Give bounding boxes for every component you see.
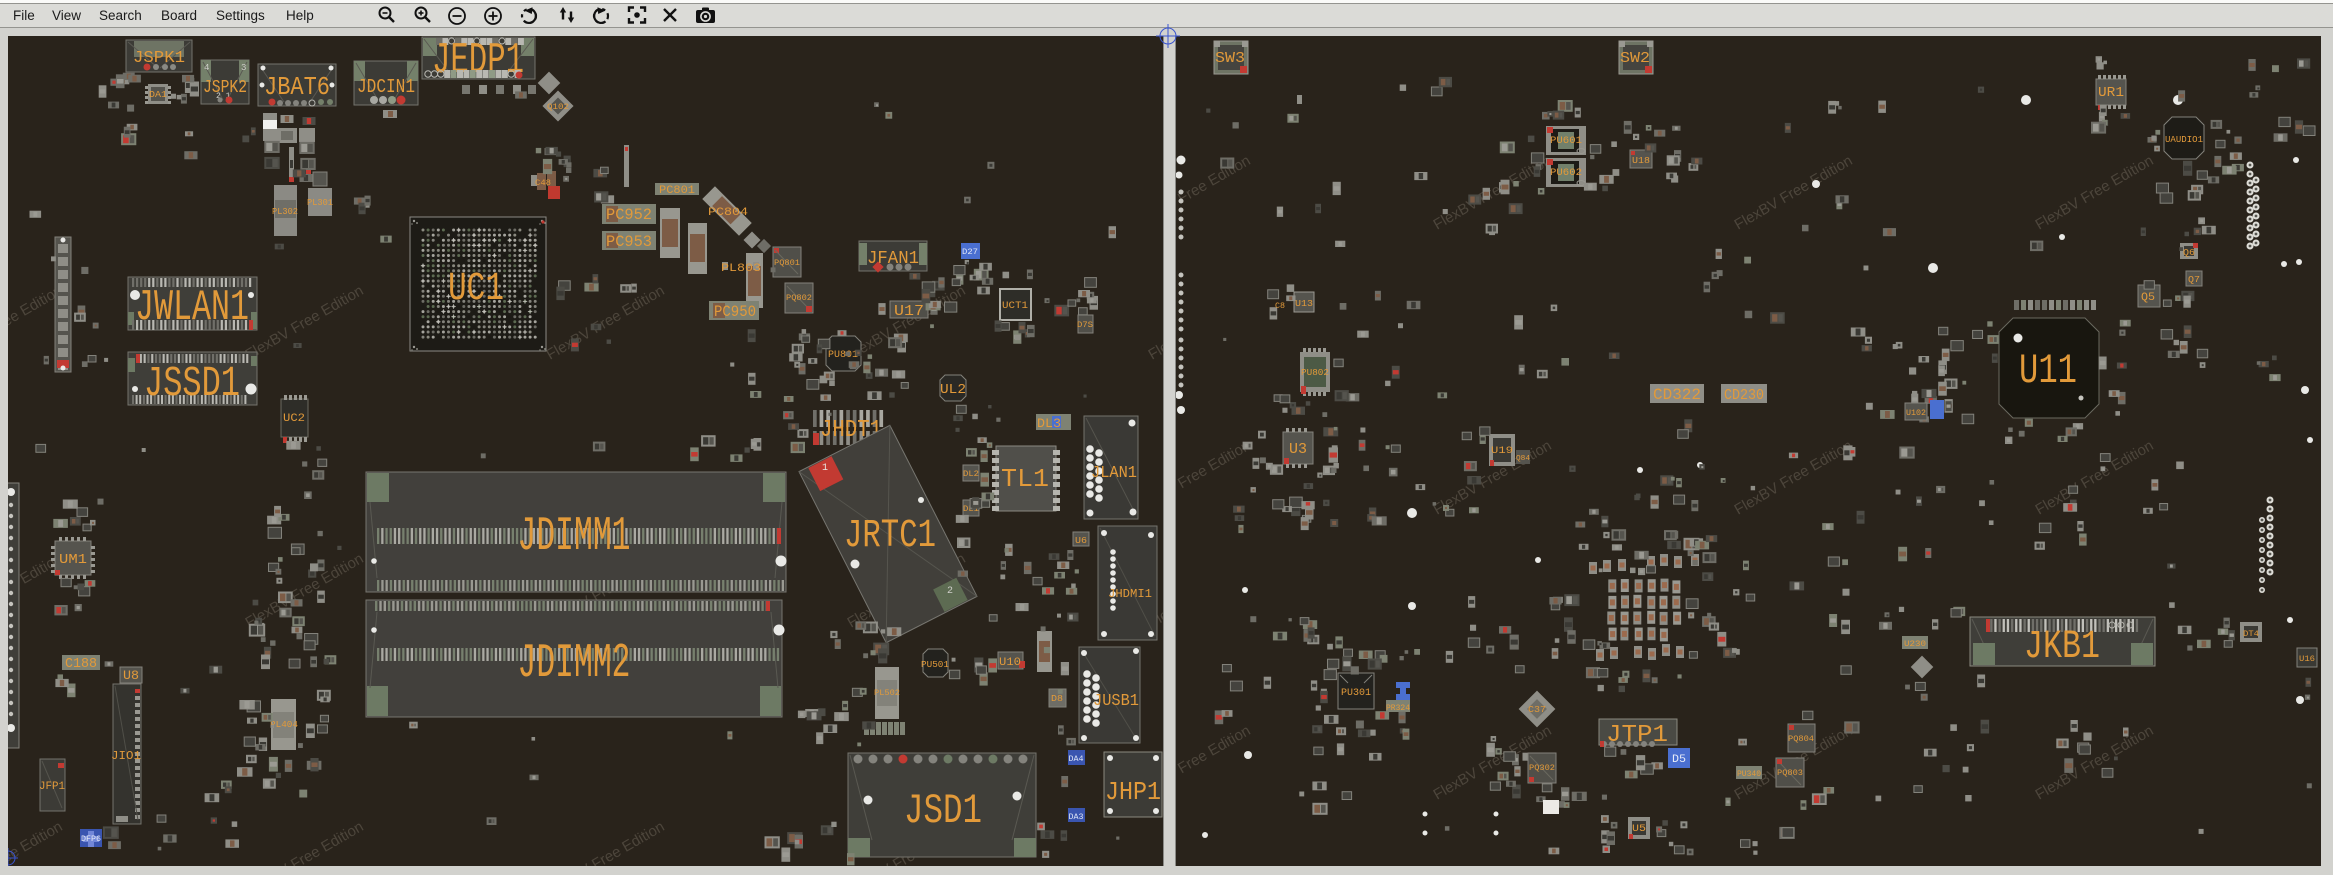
svg-text:JFP1: JFP1: [39, 781, 65, 793]
svg-text:PU801: PU801: [828, 350, 858, 361]
svg-text:PL301: PL301: [307, 198, 333, 208]
svg-text:JBAT6: JBAT6: [264, 72, 330, 102]
svg-text:U10: U10: [999, 657, 1021, 669]
svg-text:PC952: PC952: [606, 206, 652, 224]
svg-text:JUSB1: JUSB1: [1093, 692, 1139, 711]
svg-text:3: 3: [241, 63, 246, 73]
svg-text:CD322: CD322: [1653, 386, 1701, 404]
svg-text:C48: C48: [535, 179, 551, 188]
svg-text:PL803: PL803: [721, 263, 761, 275]
svg-text:D8: D8: [1051, 694, 1063, 704]
svg-text:PC801: PC801: [659, 185, 695, 197]
svg-text:U11: U11: [2019, 347, 2077, 395]
svg-text:PU802: PU802: [1301, 368, 1329, 378]
svg-text:JSPK1: JSPK1: [133, 49, 185, 68]
svg-text:DT4: DT4: [2243, 630, 2259, 639]
svg-text:JDCIN1: JDCIN1: [357, 76, 415, 98]
svg-text:PQ302: PQ302: [1529, 764, 1555, 773]
svg-text:TL1: TL1: [1001, 464, 1049, 494]
svg-text:DL2: DL2: [963, 470, 979, 479]
svg-text:D5: D5: [1672, 754, 1686, 766]
svg-text:JSD1: JSD1: [904, 787, 982, 835]
svg-text:PR324: PR324: [1386, 704, 1410, 713]
svg-text:DA3: DA3: [1069, 813, 1084, 822]
svg-text:Q5: Q5: [2141, 292, 2155, 304]
svg-text:D27: D27: [962, 248, 978, 257]
svg-text:DL3: DL3: [1037, 416, 1061, 431]
svg-text:JDIMM2: JDIMM2: [518, 637, 631, 691]
svg-text:PQ804: PQ804: [1788, 735, 1814, 744]
svg-text:PL302: PL302: [272, 207, 298, 217]
svg-text:U18: U18: [1632, 156, 1650, 166]
svg-text:C8: C8: [1275, 302, 1285, 311]
svg-text:JRTC1: JRTC1: [844, 514, 936, 559]
svg-text:JDIMM1: JDIMM1: [518, 510, 631, 564]
svg-text:1: 1: [822, 463, 828, 474]
svg-text:PU301: PU301: [1341, 688, 1371, 699]
svg-text:UCT1: UCT1: [1002, 301, 1028, 312]
svg-text:JEDP1: JEDP1: [432, 36, 524, 86]
svg-text:U16: U16: [2299, 655, 2315, 664]
svg-text:DA4: DA4: [1069, 755, 1084, 764]
svg-text:JIO1: JIO1: [111, 749, 141, 763]
svg-text:PC804: PC804: [708, 207, 748, 219]
svg-text:DFP6: DFP6: [81, 835, 101, 844]
svg-text:D7S: D7S: [1077, 321, 1093, 330]
svg-text:U19: U19: [1491, 446, 1513, 457]
svg-text:JSSD1: JSSD1: [144, 359, 240, 408]
svg-text:JHDMI1: JHDMI1: [1108, 587, 1152, 601]
svg-text:PU602: PU602: [1550, 168, 1582, 179]
svg-text:U17: U17: [894, 303, 924, 320]
svg-text:U3: U3: [1289, 441, 1307, 458]
svg-text:U8: U8: [123, 668, 139, 683]
svg-text:DA1: DA1: [149, 90, 167, 100]
svg-text:U5: U5: [1632, 824, 1646, 835]
svg-text:SW2: SW2: [1620, 50, 1650, 67]
svg-text:PQ802: PQ802: [786, 294, 812, 303]
svg-text:PL502: PL502: [874, 689, 900, 698]
svg-text:SW3: SW3: [1215, 50, 1245, 67]
svg-text:PQ801: PQ801: [774, 259, 800, 268]
svg-text:UC2: UC2: [283, 413, 305, 425]
svg-text:UR1: UR1: [2098, 85, 2124, 101]
svg-text:C37: C37: [1528, 705, 1546, 715]
svg-text:Q7: Q7: [2188, 275, 2200, 285]
svg-text:Q6: Q6: [2183, 248, 2195, 258]
svg-text:JLAN1: JLAN1: [1091, 464, 1137, 483]
svg-text:PC953: PC953: [606, 233, 652, 251]
svg-text:JWLAN1: JWLAN1: [135, 283, 249, 333]
svg-text:PL404: PL404: [270, 720, 298, 730]
svg-text:UAUDIO1: UAUDIO1: [2165, 135, 2203, 145]
svg-text:U13: U13: [1295, 299, 1313, 309]
svg-text:PQ803: PQ803: [1777, 769, 1803, 778]
svg-text:4: 4: [204, 63, 209, 73]
svg-text:UL2: UL2: [940, 382, 966, 398]
svg-text:CD230: CD230: [1724, 387, 1764, 404]
svg-text:JHP1: JHP1: [1105, 777, 1161, 807]
svg-text:Q102: Q102: [547, 103, 569, 112]
svg-text:PU340: PU340: [1737, 770, 1761, 779]
svg-text:C188: C188: [65, 656, 97, 672]
svg-text:UM1: UM1: [59, 552, 87, 568]
svg-text:UC1: UC1: [448, 267, 504, 312]
svg-text:PU501: PU501: [921, 660, 949, 670]
svg-text:2: 2: [947, 586, 953, 597]
svg-text:U102: U102: [1906, 409, 1926, 418]
svg-text:PC950: PC950: [714, 303, 756, 321]
svg-text:U6: U6: [1075, 536, 1087, 546]
svg-text:Q84: Q84: [1516, 455, 1530, 463]
svg-text:U230: U230: [1904, 640, 1926, 649]
svg-text:JKB1: JKB1: [2024, 625, 2100, 670]
svg-text:PU601: PU601: [1550, 136, 1582, 147]
